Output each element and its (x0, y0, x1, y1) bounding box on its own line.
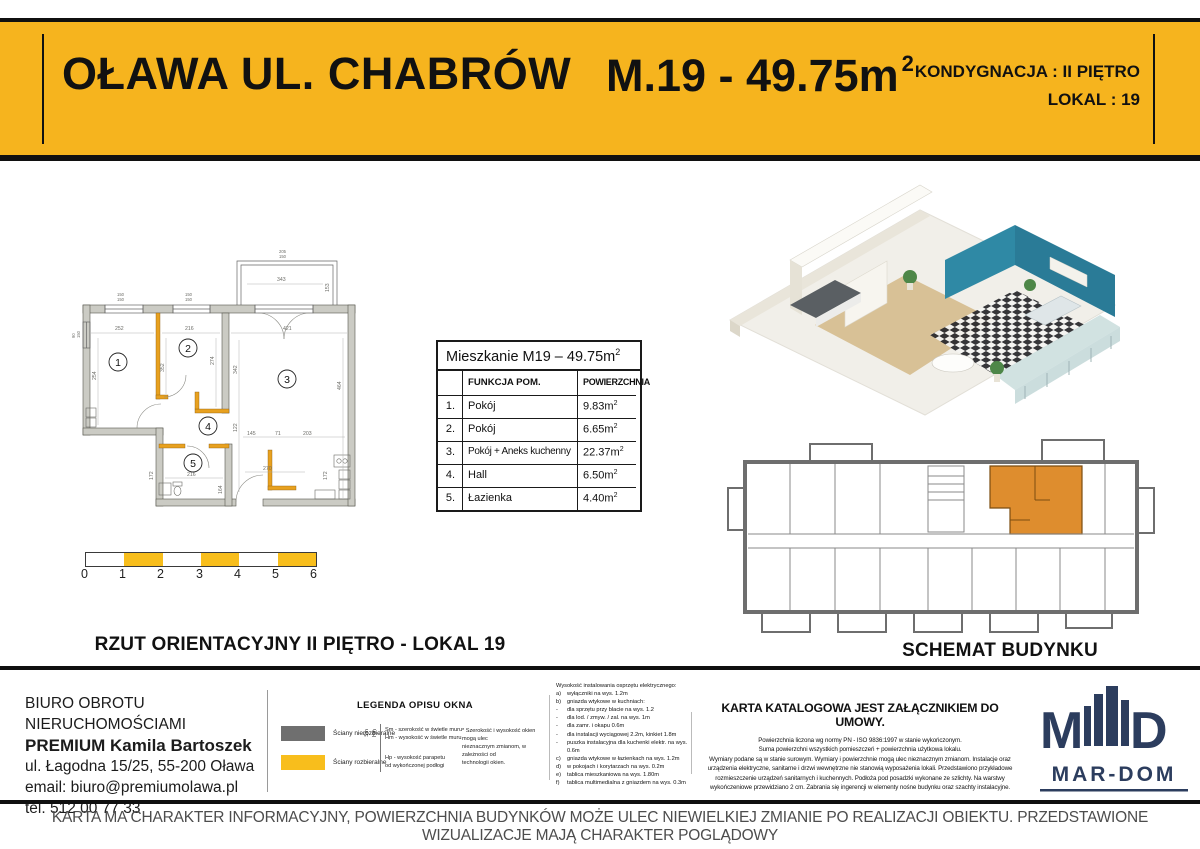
plan-balcony: 343 153 (237, 261, 337, 307)
plan-caption: RZUT ORIENTACYJNY II PIĘTRO - LOKAL 19 (60, 634, 540, 656)
legend-title: LEGENDA OPISU OKNA (295, 700, 535, 711)
item-marker: - (556, 739, 567, 747)
building-schematic (690, 430, 1195, 645)
item-text: wyłączniki na wys. 1.2m (567, 690, 689, 698)
item-text: w pokojach i korytarzach na wys. 0.2m (567, 763, 689, 771)
item-text: dla instalacji wyciągowej 2.2m, kinkiet … (567, 731, 689, 739)
room-table: Mieszkanie M19 – 49.75m2 FUNKCJA POM. PO… (436, 340, 642, 512)
svg-text:1: 1 (115, 357, 121, 369)
disclaimer-text: KARTA MA CHARAKTER INFORMACYJNY, POWIERZ… (0, 809, 1200, 845)
footer-divider-3 (691, 712, 692, 774)
row-area-value: 4.40m (583, 492, 614, 504)
scale-tick: 0 (81, 567, 88, 581)
legend-swatch-yellow (281, 755, 325, 770)
row-area-value: 6.50m (583, 469, 614, 481)
legend-note-line: nieznacznym zmianom, w zależności od (462, 743, 548, 759)
apartment-3d-visualization (695, 165, 1125, 445)
row-area: 4.40m2 (578, 487, 636, 510)
unit-number: M.19 - 49.75m (606, 50, 899, 101)
svg-text:216: 216 (185, 326, 194, 332)
legend-note-sm-hm: Sm - szerokość w świetle muru Hm - wysok… (385, 726, 462, 742)
agency-name-line1: BIURO OBROTU NIERUCHOMOŚCIAMI (25, 693, 270, 735)
electrical-notes: Wysokość instalowania osprzętu elektrycz… (556, 682, 689, 787)
item-marker: a) (556, 690, 567, 698)
row-area-value: 6.65m (583, 423, 614, 435)
svg-text:2: 2 (185, 343, 191, 355)
item-text: dla lod. / zmyw. / zal. na wys. 1m (567, 714, 689, 722)
legend-note-line: Hm - wysokość w świetle muru (385, 734, 462, 742)
scale-tick: 5 (272, 567, 279, 581)
contract-note-title: KARTA KATALOGOWA JEST ZAŁĄCZNIKIEM DO UM… (700, 701, 1020, 729)
catalog-card: OŁAWA UL. CHABRÓW M.19 - 49.75m2 KONDYGN… (0, 0, 1200, 849)
header-left-rule (42, 34, 44, 144)
item-text: tablica mieszkaniowa na wys. 1.80m (567, 771, 689, 779)
legend-note-line: technologii okien. (462, 759, 548, 767)
schematic-caption: SCHEMAT BUDYNKU (820, 640, 1180, 662)
svg-text:5: 5 (190, 458, 196, 470)
unit-sup: 2 (902, 51, 914, 76)
item-marker: - (556, 714, 567, 722)
svg-text:352: 352 (160, 363, 166, 372)
row-area: 22.37m2 (578, 441, 636, 464)
svg-text:122: 122 (233, 423, 239, 432)
svg-text:150: 150 (117, 297, 125, 302)
legend-asterisk-note: * Szerokość i wysokość okien mogą ulec n… (462, 727, 548, 767)
scale-tick: 6 (310, 567, 317, 581)
col-powierzchnia: POWIERZCHNIA (578, 371, 636, 395)
mardom-logo: M D MAR-DOM (1038, 686, 1190, 796)
row-area: 6.50m2 (578, 464, 636, 487)
agency-address: ul. Łagodna 15/25, 55-200 Oława (25, 756, 270, 777)
row-name: Pokój (462, 418, 578, 441)
row-area-sup: 2 (614, 469, 618, 476)
floor-label: KONDYGNACJA : II PIĘTRO (915, 58, 1140, 86)
legend-symbol-sm: Sm (364, 729, 370, 737)
schematic-unit-19 (990, 466, 1082, 534)
row-name: Pokój (462, 395, 578, 418)
agency-name-line2: PREMIUM Kamila Bartoszek (25, 735, 270, 756)
plan-window-labels: 150 150 150 150 205 150 90 150 (71, 249, 287, 338)
legend-label-yellow: Ściany rozbieralne (333, 759, 386, 766)
legend-symbol-hm: Hm (372, 729, 378, 737)
scale-tick: 1 (119, 567, 126, 581)
item-marker: - (556, 731, 567, 739)
scale-tick: 3 (196, 567, 203, 581)
svg-text:150: 150 (76, 330, 81, 338)
svg-text:150: 150 (279, 254, 287, 259)
row-area-sup: 2 (620, 446, 624, 453)
row-area-sup: 2 (614, 492, 618, 499)
row-no: 2. (438, 418, 462, 441)
item-marker: f) (556, 779, 567, 787)
row-area-sup: 2 (614, 400, 618, 407)
footer-bottom-rule (0, 800, 1200, 804)
scale-bar (85, 552, 317, 567)
item-marker: - (556, 706, 567, 714)
svg-text:342: 342 (233, 365, 239, 374)
floor-info: KONDYGNACJA : II PIĘTRO LOKAL : 19 (915, 58, 1140, 114)
item-marker: b) (556, 698, 567, 706)
item-text: puszka instalacyjna dla kuchenki elektr.… (567, 739, 689, 747)
svg-text:71: 71 (275, 431, 281, 437)
item-text: 0.6m (567, 747, 689, 755)
row-name: Pokój + Aneks kuchenny (462, 441, 578, 464)
legend-note-line: * Szerokość i wysokość okien mogą ulec (462, 727, 548, 743)
footer-top-rule (0, 666, 1200, 670)
svg-text:421: 421 (283, 326, 292, 332)
svg-text:150: 150 (185, 297, 193, 302)
item-marker: c) (556, 755, 567, 763)
floor-plan: 343 153 (55, 222, 403, 534)
svg-text:153: 153 (325, 283, 331, 292)
item-marker (556, 747, 567, 755)
item-text: dla sprzętu przy blacie na wys. 1.2 (567, 706, 689, 714)
row-no: 4. (438, 464, 462, 487)
contract-note-line: Suma powierzchni wszystkich pomieszczeń … (700, 745, 1020, 754)
logo-underline (1040, 789, 1188, 792)
contract-note-line: Wymiary podane są w stanie surowym. Wymi… (700, 755, 1020, 764)
legend-note-line: Sm - szerokość w świetle muru (385, 726, 462, 734)
row-area: 9.83m2 (578, 395, 636, 418)
electrical-title: Wysokość instalowania osprzętu elektrycz… (556, 682, 689, 690)
item-marker: - (556, 722, 567, 730)
contract-note-line: urządzenia elektryczne, sanitarne i drzw… (700, 764, 1020, 773)
svg-text:343: 343 (277, 277, 286, 283)
svg-text:145: 145 (247, 431, 256, 437)
row-area: 6.65m2 (578, 418, 636, 441)
scale-tick: 2 (157, 567, 164, 581)
contract-note-line: rozmieszczenie urządzeń sanitarnych i ku… (700, 774, 1020, 783)
schematic-outline (728, 440, 1154, 632)
table-row: 2. Pokój 6.65m2 (438, 418, 640, 441)
svg-text:464: 464 (337, 381, 343, 390)
table-row: 5. Łazienka 4.40m2 (438, 487, 640, 510)
row-no: 5. (438, 487, 462, 510)
svg-text:254: 254 (92, 371, 98, 380)
row-area-value: 22.37m (583, 446, 620, 458)
legend-symbol-rule (380, 724, 381, 772)
logo-letter-d: D (1130, 702, 1168, 760)
row-name: Łazienka (462, 487, 578, 510)
room-table-title: Mieszkanie M19 – 49.75m2 (438, 342, 640, 371)
unit-title: M.19 - 49.75m2 (606, 50, 911, 102)
row-no: 3. (438, 441, 462, 464)
svg-text:164: 164 (218, 485, 224, 494)
header-right-rule (1153, 34, 1155, 144)
svg-text:172: 172 (323, 471, 329, 480)
plan-walls (83, 305, 355, 506)
mardom-logo-building-icon (1084, 686, 1129, 746)
contract-note-line: wykończeniowe przewidziano 2 cm. Zabrani… (700, 783, 1020, 792)
row-name: Hall (462, 464, 578, 487)
item-marker: e) (556, 771, 567, 779)
contract-note-line: Powierzchnia liczona wg normy PN - ISO 9… (700, 736, 1020, 745)
table-row: 1. Pokój 9.83m2 (438, 395, 640, 418)
logo-letter-m: M (1040, 702, 1083, 760)
room-table-title-text: Mieszkanie M19 – 49.75m (446, 349, 615, 365)
agency-email: email: biuro@premiumolawa.pl (25, 777, 270, 798)
legend-note-hp: Hp - wysokość parapetu od wykończonej po… (385, 754, 445, 770)
svg-text:252: 252 (115, 326, 124, 332)
svg-text:3: 3 (284, 374, 290, 386)
item-text: dla zamr. i okapu 0.6m (567, 722, 689, 730)
item-marker: d) (556, 763, 567, 771)
row-no: 1. (438, 395, 462, 418)
scale-tick: 4 (234, 567, 241, 581)
room-table-title-sup: 2 (615, 347, 620, 357)
row-area-value: 9.83m (583, 400, 614, 412)
logo-wordmark: MAR-DOM (1052, 763, 1177, 786)
plan-dim-lines (91, 333, 347, 498)
col-funkcja: FUNKCJA POM. (462, 371, 578, 395)
svg-text:203: 203 (303, 431, 312, 437)
room-table-header: FUNKCJA POM. POWIERZCHNIA (438, 371, 640, 395)
svg-text:270: 270 (263, 466, 272, 472)
header-band: OŁAWA UL. CHABRÓW M.19 - 49.75m2 KONDYGN… (0, 22, 1200, 155)
item-text: gniazda wtykowe w kuchniach: (567, 698, 689, 706)
table-row: 4. Hall 6.50m2 (438, 464, 640, 487)
footer-divider-1 (267, 690, 268, 792)
header-bottom-rule (0, 155, 1200, 161)
page-title: OŁAWA UL. CHABRÓW (62, 48, 571, 100)
row-area-sup: 2 (614, 423, 618, 430)
table-row: 3. Pokój + Aneks kuchenny 22.37m2 (438, 441, 640, 464)
local-label: LOKAL : 19 (915, 86, 1140, 114)
svg-text:216: 216 (187, 472, 196, 478)
svg-text:274: 274 (210, 356, 216, 365)
item-text: gniazda wtykowe w łazienkach na wys. 1.2… (567, 755, 689, 763)
legend-note-line: od wykończonej podłogi (385, 762, 445, 770)
item-text: tablica multimedialna z gniazdem na wys.… (567, 779, 689, 787)
svg-text:4: 4 (205, 421, 211, 433)
legend-note-line: Hp - wysokość parapetu (385, 754, 445, 762)
legend-swatch-gray (281, 726, 325, 741)
svg-text:172: 172 (149, 471, 155, 480)
footer-divider-2 (549, 695, 550, 780)
contract-note: KARTA KATALOGOWA JEST ZAŁĄCZNIKIEM DO UM… (700, 701, 1020, 792)
